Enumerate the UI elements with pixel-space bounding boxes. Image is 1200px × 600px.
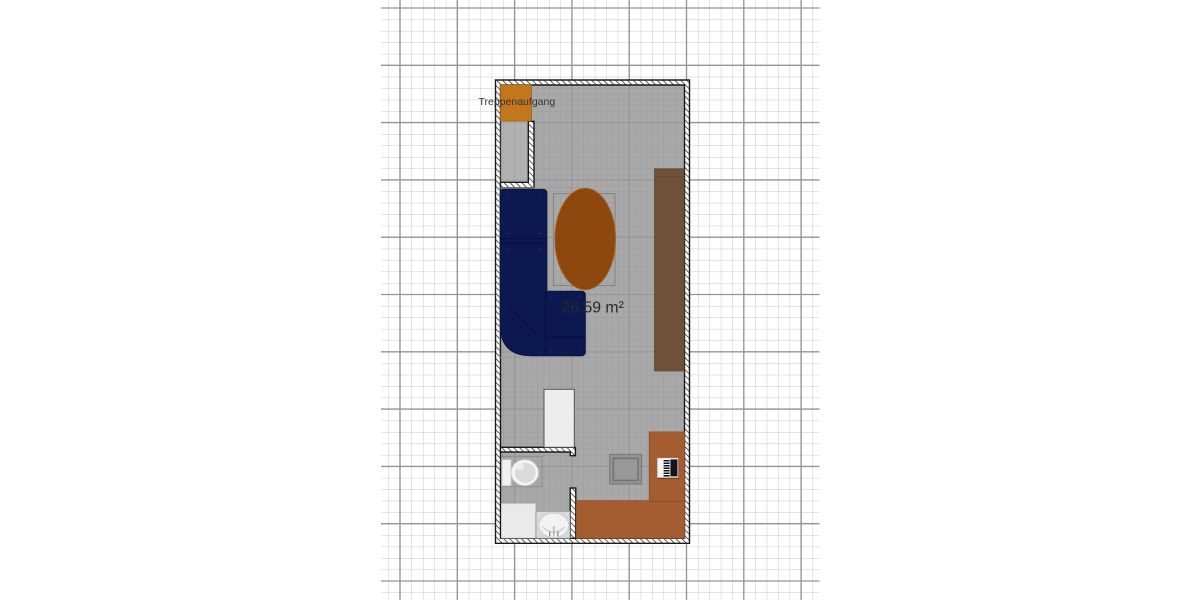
svg-text:26,59 m²: 26,59 m²	[562, 300, 624, 317]
svg-text:Treppenaufgang: Treppenaufgang	[479, 96, 556, 108]
